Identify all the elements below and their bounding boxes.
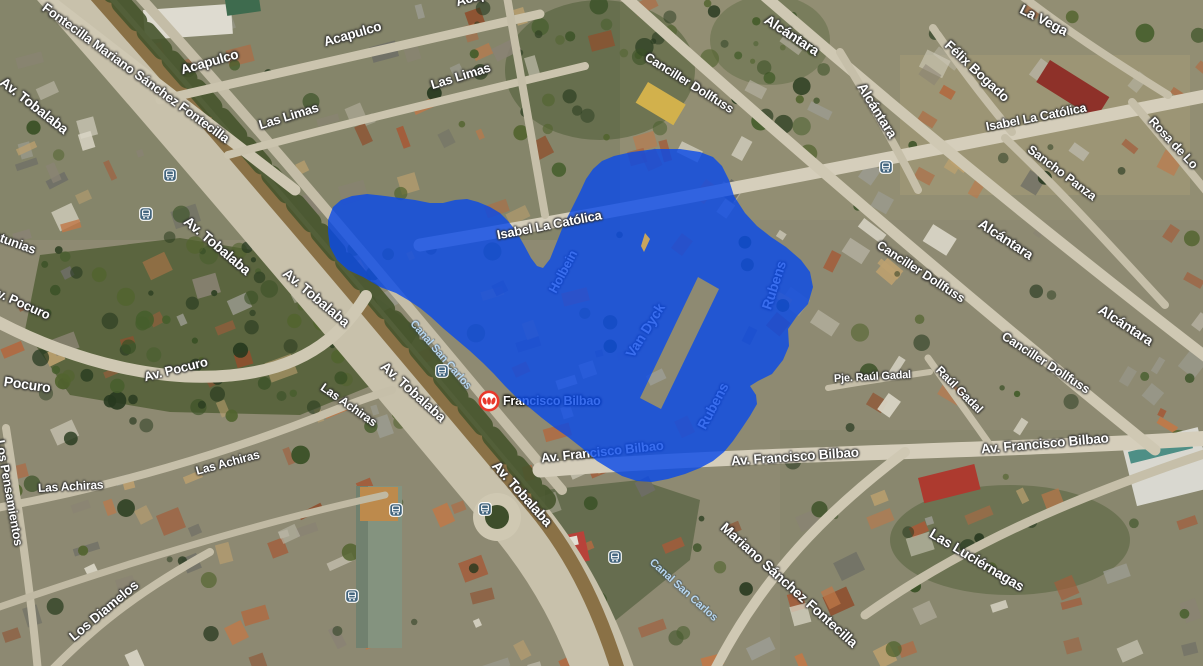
bus-stop-icon[interactable] [608,550,622,564]
bus-stop-icon[interactable] [345,589,359,603]
bus-stop-icon[interactable] [879,160,893,174]
highlighted-region[interactable] [328,149,813,482]
metro-station-icon[interactable] [478,390,500,412]
bus-stop-icon[interactable] [435,364,449,378]
map-canvas[interactable]: HolbeinVan DyckRubensRubensAv. Francisco… [0,0,1203,666]
bus-stop-icon[interactable] [478,502,492,516]
bus-stop-icon[interactable] [163,168,177,182]
bus-stop-icon[interactable] [139,207,153,221]
region-overlay-layer [0,0,1203,666]
bus-stop-icon[interactable] [389,503,403,517]
